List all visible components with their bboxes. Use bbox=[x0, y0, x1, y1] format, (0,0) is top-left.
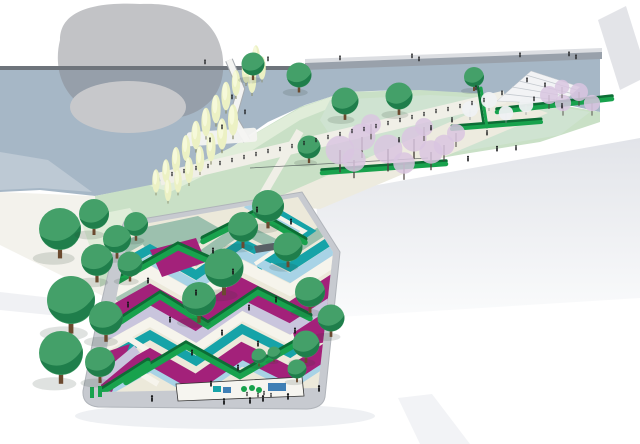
person bbox=[212, 247, 214, 253]
green-post bbox=[90, 387, 94, 398]
person bbox=[315, 138, 317, 142]
person bbox=[249, 397, 251, 404]
person bbox=[147, 277, 149, 283]
person bbox=[279, 147, 281, 151]
person bbox=[195, 289, 197, 295]
person bbox=[561, 103, 563, 108]
person bbox=[486, 130, 488, 135]
person bbox=[248, 304, 250, 310]
person bbox=[204, 59, 206, 64]
person bbox=[387, 121, 389, 125]
person bbox=[237, 364, 239, 370]
person bbox=[411, 115, 413, 119]
person bbox=[207, 164, 209, 168]
person bbox=[351, 129, 353, 133]
person bbox=[209, 137, 211, 142]
play-equipment bbox=[223, 387, 231, 393]
person bbox=[398, 137, 400, 142]
park-masterplan-illustration bbox=[0, 0, 640, 444]
person bbox=[232, 268, 234, 274]
person bbox=[291, 144, 293, 148]
person bbox=[257, 340, 259, 346]
person bbox=[294, 327, 296, 333]
green-post bbox=[98, 386, 102, 397]
person bbox=[339, 132, 341, 136]
person bbox=[451, 117, 453, 122]
person bbox=[496, 146, 498, 152]
person bbox=[263, 391, 265, 395]
person bbox=[151, 395, 153, 402]
person bbox=[171, 172, 173, 176]
person bbox=[303, 141, 305, 145]
person bbox=[257, 393, 259, 397]
person bbox=[515, 145, 517, 150]
person bbox=[267, 56, 269, 61]
person bbox=[526, 77, 528, 82]
person bbox=[221, 124, 223, 129]
person bbox=[471, 101, 473, 105]
play-equipment bbox=[213, 386, 221, 392]
river-island bbox=[70, 81, 186, 133]
person bbox=[231, 158, 233, 162]
person bbox=[255, 152, 257, 156]
person bbox=[483, 98, 485, 102]
person bbox=[221, 329, 223, 335]
person bbox=[447, 107, 449, 111]
person bbox=[243, 155, 245, 159]
person bbox=[256, 206, 258, 212]
person bbox=[183, 169, 185, 173]
person bbox=[568, 51, 570, 56]
person bbox=[195, 166, 197, 170]
illustration-canvas bbox=[0, 0, 640, 444]
person bbox=[169, 316, 171, 322]
person bbox=[575, 54, 577, 59]
person bbox=[318, 385, 320, 392]
person bbox=[262, 395, 264, 402]
person bbox=[210, 380, 212, 386]
person bbox=[270, 393, 272, 397]
person bbox=[127, 301, 129, 307]
person bbox=[418, 56, 420, 61]
person bbox=[246, 392, 248, 396]
person bbox=[327, 135, 329, 139]
person bbox=[501, 90, 503, 95]
person bbox=[411, 53, 413, 58]
person bbox=[375, 124, 377, 128]
person bbox=[290, 218, 292, 224]
person bbox=[231, 94, 233, 99]
person bbox=[475, 85, 477, 90]
play-pool bbox=[268, 383, 286, 391]
person bbox=[275, 296, 277, 302]
person bbox=[459, 104, 461, 108]
person bbox=[430, 125, 432, 130]
person bbox=[544, 82, 546, 87]
person bbox=[219, 161, 221, 165]
person bbox=[363, 127, 365, 131]
person bbox=[287, 393, 289, 400]
person bbox=[267, 149, 269, 153]
person bbox=[223, 398, 225, 405]
person bbox=[423, 112, 425, 116]
person bbox=[399, 118, 401, 122]
person bbox=[191, 349, 193, 355]
person bbox=[339, 55, 341, 60]
person bbox=[519, 52, 521, 57]
person bbox=[244, 109, 246, 114]
person bbox=[467, 156, 469, 162]
person bbox=[533, 96, 535, 101]
person bbox=[435, 109, 437, 113]
